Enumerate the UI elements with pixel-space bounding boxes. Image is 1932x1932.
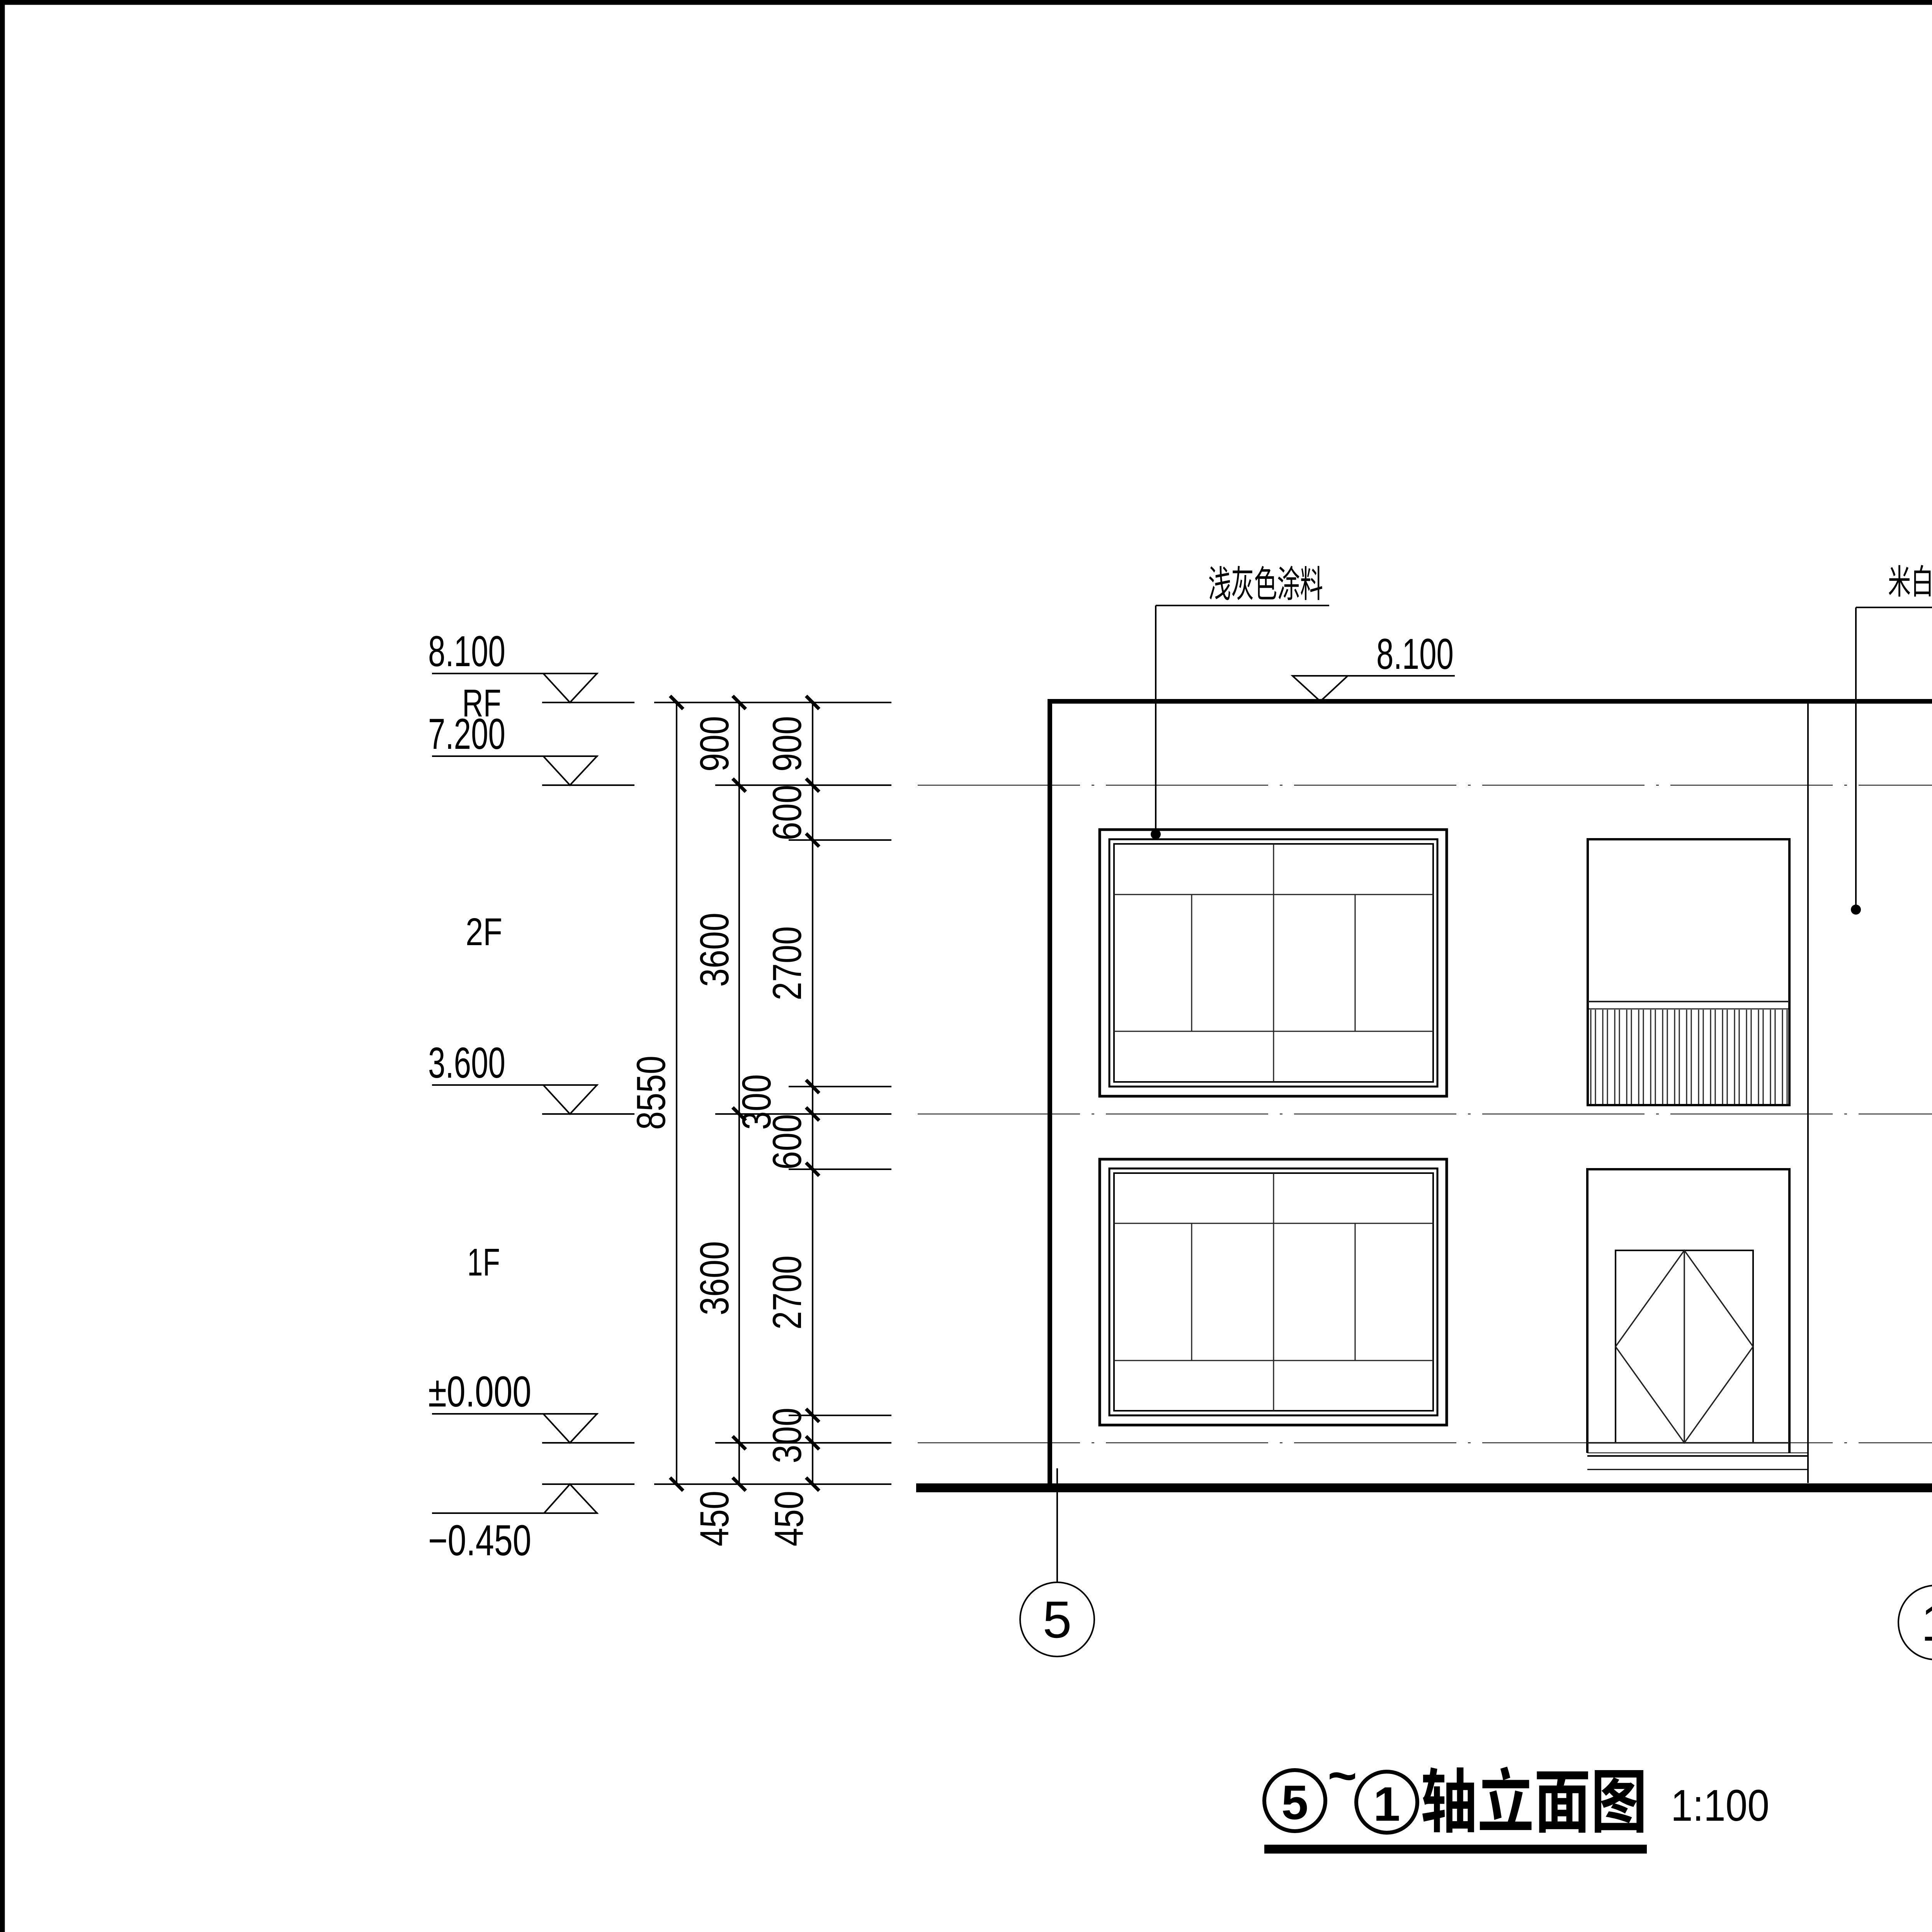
svg-text:1:100: 1:100: [1671, 1781, 1769, 1830]
svg-text:8.100: 8.100: [428, 627, 505, 675]
svg-text:8550: 8550: [629, 1056, 674, 1130]
svg-text:±0.000: ±0.000: [428, 1367, 531, 1416]
svg-text:1: 1: [1373, 1777, 1400, 1831]
svg-text:600: 600: [765, 785, 810, 840]
svg-text:1: 1: [1921, 1594, 1932, 1652]
svg-text:3.600: 3.600: [428, 1039, 505, 1087]
svg-text:2700: 2700: [765, 926, 810, 1000]
svg-text:2F: 2F: [466, 910, 502, 954]
svg-text:300: 300: [765, 1408, 810, 1463]
svg-text:−0.450: −0.450: [428, 1516, 531, 1565]
svg-text:300: 300: [734, 1074, 779, 1130]
svg-text:~: ~: [1328, 1747, 1357, 1804]
svg-text:900: 900: [765, 716, 810, 772]
svg-text:1F: 1F: [467, 1241, 500, 1284]
svg-text:450: 450: [767, 1491, 812, 1546]
svg-text:900: 900: [692, 716, 737, 772]
svg-text:450: 450: [692, 1491, 737, 1546]
svg-text:7.200: 7.200: [428, 710, 505, 758]
svg-text:2700: 2700: [765, 1255, 810, 1330]
svg-text:3600: 3600: [692, 1241, 737, 1315]
svg-text:8.100: 8.100: [1376, 630, 1454, 678]
svg-text:5: 5: [1043, 1590, 1071, 1649]
svg-text:5: 5: [1281, 1776, 1308, 1830]
svg-text:3600: 3600: [692, 913, 737, 987]
